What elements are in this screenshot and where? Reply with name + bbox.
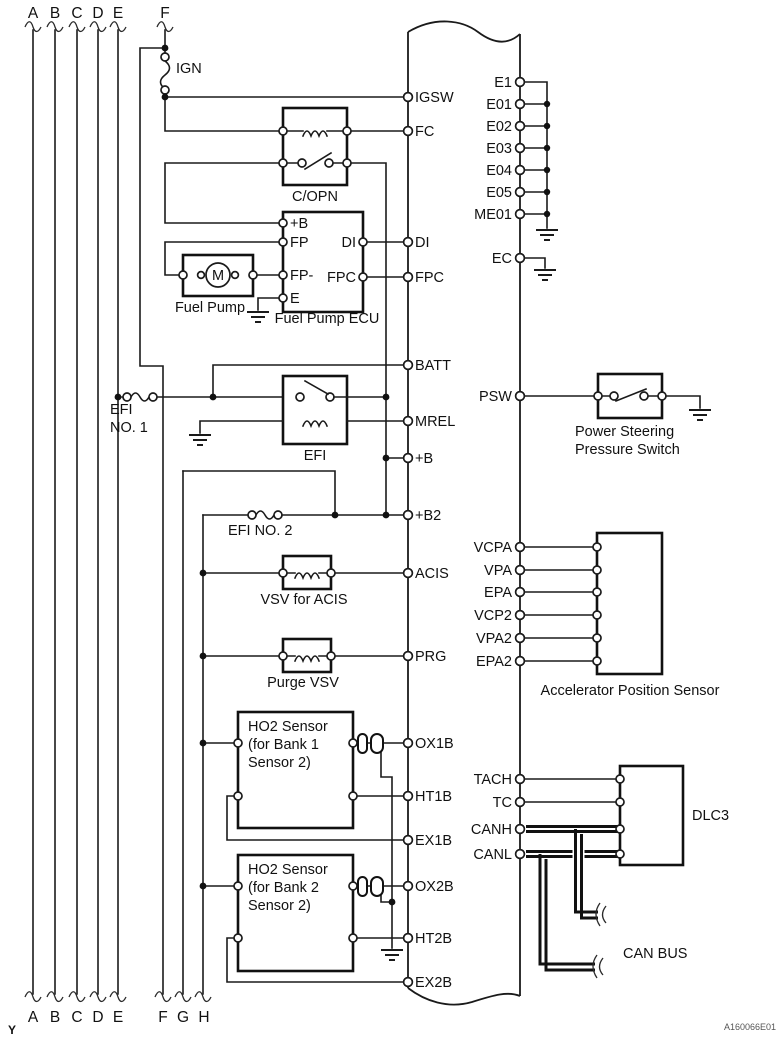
ecm-terminal-e05: E05 — [486, 185, 512, 201]
ecm-terminal-prg: PRG — [415, 649, 446, 665]
ho2-bank1-label-line1: HO2 Sensor — [248, 719, 328, 735]
ecm-terminal-ex1b: EX1B — [415, 833, 452, 849]
purge-vsv — [200, 639, 404, 672]
connector-bottom-g: G — [177, 1009, 189, 1026]
efi-relay-label: EFI — [304, 448, 327, 464]
connector-top-d: D — [92, 5, 103, 22]
ecm-terminal-ec: EC — [492, 251, 512, 267]
ecm-terminal-e03: E03 — [486, 141, 512, 157]
ecm-terminal-e1: E1 — [494, 75, 512, 91]
connector-bottom-e: E — [113, 1009, 123, 1026]
psw-circuit — [524, 374, 711, 420]
fuel-pump-label: Fuel Pump — [175, 300, 245, 316]
fp-ecu-terminal-di: DI — [342, 235, 357, 251]
ecm-ground-bus — [524, 82, 558, 280]
connector-top-f: F — [160, 5, 169, 22]
ign-fuse-label: IGN — [176, 61, 202, 77]
efi-relay-circuit — [115, 365, 404, 461]
ecm-terminal-ht2b: HT2B — [415, 931, 452, 947]
psw-label-line2: Pressure Switch — [575, 442, 680, 458]
connector-bottom-a: A — [28, 1009, 39, 1026]
shield-connector-icon — [358, 734, 383, 753]
wiring-diagram: A B C D E F A B C D E F G H IGN EFI NO. … — [0, 0, 783, 1042]
ecm-terminal-psw: PSW — [479, 389, 512, 405]
ground-ho2-shield — [381, 950, 403, 960]
ground-fp-ecu — [247, 312, 269, 322]
ecm-terminal-fc: FC — [415, 124, 434, 140]
ecm-terminal-plusb2: +B2 — [415, 508, 441, 524]
ecm-terminal-ex2b: EX2B — [415, 975, 452, 991]
ecm-terminal-fpc: FPC — [415, 270, 444, 286]
ecm-terminal-igsw: IGSW — [415, 90, 454, 106]
ecm-terminal-e02: E02 — [486, 119, 512, 135]
connector-top-b: B — [50, 5, 60, 22]
vsv-acis-label: VSV for ACIS — [260, 592, 347, 608]
efi-no1-fuse-label-line1: EFI — [110, 402, 133, 418]
ecm-terminal-epa: EPA — [484, 585, 512, 601]
efi-no1-fuse — [122, 393, 296, 401]
ecm-terminal-vpa: VPA — [484, 563, 512, 579]
connector-top-a: A — [28, 5, 39, 22]
aps-label: Accelerator Position Sensor — [541, 683, 720, 699]
ecm-terminal-plusb: +B — [415, 451, 433, 467]
fp-ecu-terminal-e: E — [290, 291, 300, 307]
ho2-bank1-label-line2: (for Bank 1 — [248, 737, 319, 753]
ecm-terminal-di: DI — [415, 235, 430, 251]
ho2-bank2-label-line3: Sensor 2) — [248, 898, 311, 914]
ign-fuse — [161, 53, 170, 94]
ecm-terminal-me01: ME01 — [474, 207, 512, 223]
ecm-terminal-mrel: MREL — [415, 414, 455, 430]
ground-efi-relay — [189, 435, 211, 445]
ecm-terminal-ht1b: HT1B — [415, 789, 452, 805]
ecm-terminal-e04: E04 — [486, 163, 512, 179]
copn-relay-label: C/OPN — [292, 189, 338, 205]
connector-top-e: E — [113, 5, 123, 22]
ho2-bank2-label-line2: (for Bank 2 — [248, 880, 319, 896]
ecm-terminal-vcpa: VCPA — [474, 540, 513, 556]
vsv-acis — [200, 556, 404, 589]
efi-no2-fuse-label: EFI NO. 2 — [228, 523, 292, 539]
aps-circuit — [524, 533, 662, 674]
efi-no1-fuse-label-line2: NO. 1 — [110, 420, 148, 436]
dlc3-label: DLC3 — [692, 808, 729, 824]
purge-vsv-label: Purge VSV — [267, 675, 339, 691]
fuel-pump-ecu-label: Fuel Pump ECU — [275, 311, 380, 327]
harness-lines-a-e — [25, 22, 126, 1002]
fp-ecu-terminal-fpminus: FP- — [290, 268, 314, 284]
connector-bottom-h: H — [198, 1009, 209, 1026]
ho2-bank1-label-line3: Sensor 2) — [248, 755, 311, 771]
ecm-terminal-acis: ACIS — [415, 566, 449, 582]
connector-bottom-f: F — [158, 1009, 167, 1026]
shield-connector-icon — [358, 877, 383, 896]
figure-code: A160066E01 — [724, 1022, 776, 1032]
ecm-terminal-ox1b: OX1B — [415, 736, 454, 752]
ecm-terminal-vcp2: VCP2 — [474, 608, 512, 624]
ecm-terminal-tach: TACH — [474, 772, 512, 788]
motor-label: M — [212, 268, 224, 284]
connector-bottom-d: D — [92, 1009, 103, 1026]
connector-top-c: C — [71, 5, 82, 22]
psw-label-line1: Power Steering — [575, 424, 674, 440]
diagram-canvas: A B C D E F A B C D E F G H IGN EFI NO. … — [0, 0, 783, 1042]
fp-ecu-terminal-fp: FP — [290, 235, 309, 251]
connector-bottom-b: B — [50, 1009, 60, 1026]
ecm-terminal-vpa2: VPA2 — [476, 631, 512, 647]
ecm-terminal-canl: CANL — [473, 847, 512, 863]
connector-bottom-c: C — [71, 1009, 82, 1026]
fp-ecu-terminal-fpc: FPC — [327, 270, 356, 286]
ecm-terminal-e01: E01 — [486, 97, 512, 113]
ecm-terminal-epa2: EPA2 — [476, 654, 512, 670]
ecm-terminal-canh: CANH — [471, 822, 512, 838]
ecm-terminal-batt: BATT — [415, 358, 451, 374]
efi-no2-fuse — [248, 511, 282, 519]
ecm-terminal-tc: TC — [493, 795, 512, 811]
page-marker: Y — [8, 1023, 16, 1037]
ecm-terminal-ox2b: OX2B — [415, 879, 454, 895]
can-bus-label: CAN BUS — [623, 946, 687, 962]
ho2-bank2-label-line1: HO2 Sensor — [248, 862, 328, 878]
fp-ecu-terminal-plusb: +B — [290, 216, 308, 232]
